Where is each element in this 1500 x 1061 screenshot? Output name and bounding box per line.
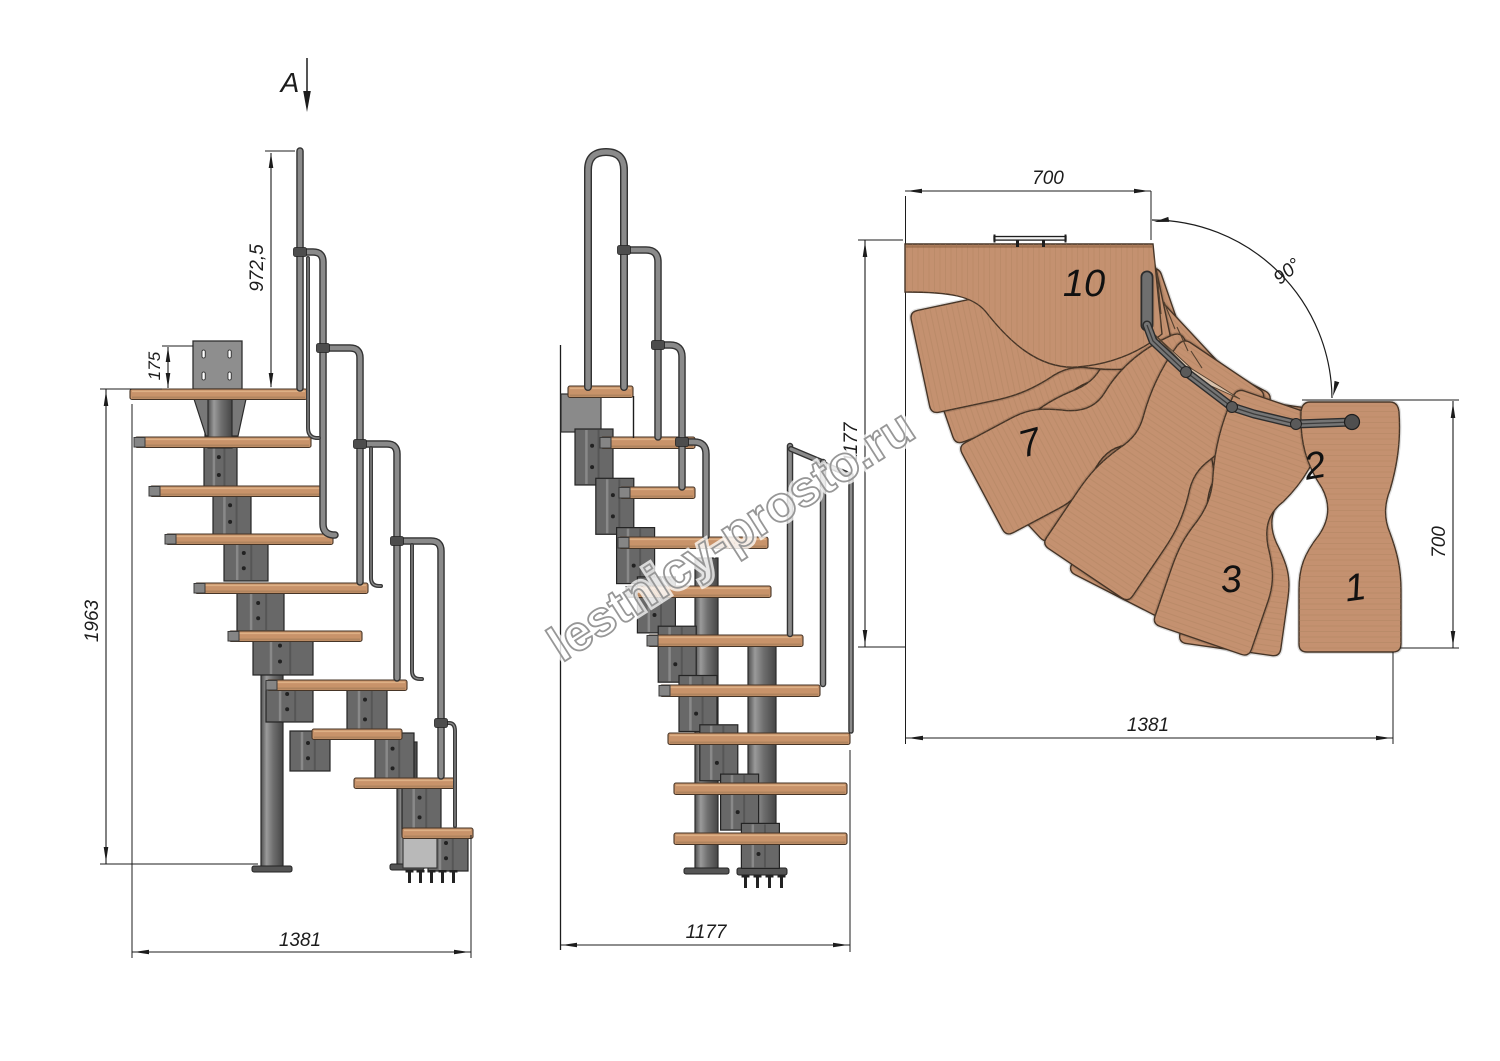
svg-text:3: 3 <box>1219 558 1244 602</box>
svg-text:10: 10 <box>1063 263 1105 305</box>
svg-text:1381: 1381 <box>1127 715 1169 736</box>
svg-text:700: 700 <box>1429 526 1450 558</box>
svg-text:A: A <box>279 67 300 98</box>
svg-text:1963: 1963 <box>82 599 103 642</box>
svg-text:1381: 1381 <box>279 930 321 951</box>
svg-text:700: 700 <box>1032 168 1064 189</box>
svg-text:1177: 1177 <box>686 922 728 943</box>
svg-text:972,5: 972,5 <box>247 244 268 292</box>
svg-text:175: 175 <box>145 351 164 380</box>
